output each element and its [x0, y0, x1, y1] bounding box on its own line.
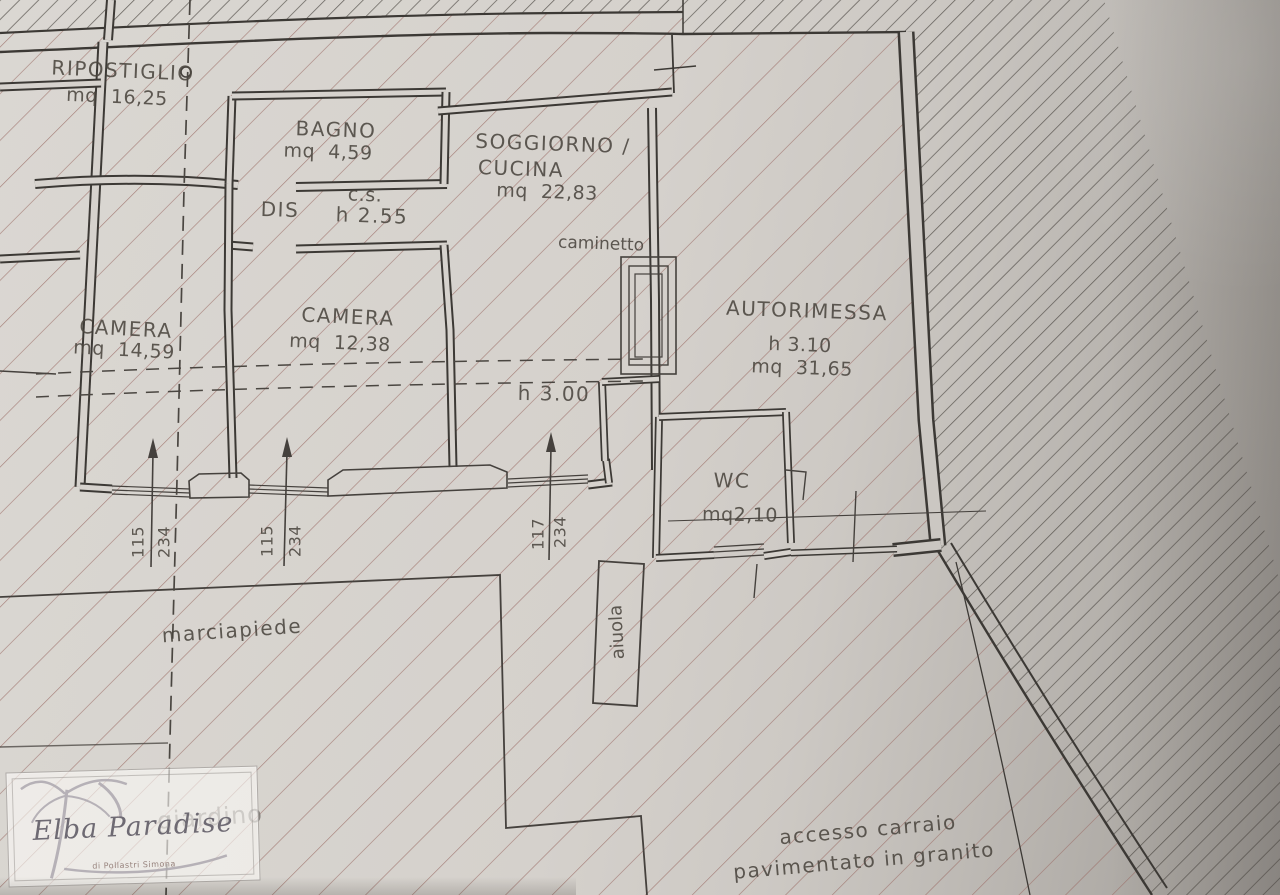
- room-label-dis: DIS: [260, 199, 299, 221]
- label-caminetto: caminetto: [558, 235, 645, 256]
- area-label-camera2: mq 12,38: [289, 332, 391, 356]
- window1-width: 115: [131, 526, 148, 558]
- window1-height: 234: [157, 526, 174, 558]
- height-label-main: h 3.00: [518, 383, 591, 405]
- area-label-soggiorno: mq 22,83: [496, 181, 598, 204]
- label-aiuola: aiuola: [607, 604, 629, 659]
- window2-height: 234: [288, 525, 305, 557]
- window3-height: 234: [553, 516, 570, 548]
- room-label-soggiorno-1: SOGGIORNO /: [475, 131, 631, 157]
- area-label-ripostiglio: mq 16,25: [66, 86, 168, 110]
- room-label-autorimessa: AUTORIMESSA: [726, 298, 889, 325]
- window3-width: 117: [531, 518, 548, 550]
- area-label-wc: mq2,10: [702, 505, 778, 526]
- floor-plan-drawing: [0, 0, 1280, 895]
- room-label-camera2: CAMERA: [301, 304, 395, 329]
- area-label-bagno: mq 4,59: [283, 141, 373, 164]
- floor-plan-photo: RIPOSTIGLIO mq 16,25 BAGNO mq 4,59 SOGGI…: [0, 0, 1280, 895]
- watermark-logo: Elba Paradise di Pollastri Simona: [5, 766, 260, 888]
- window2-width: 115: [260, 525, 277, 557]
- room-label-bagno: BAGNO: [295, 118, 376, 142]
- height-label-autorimessa: h 3.10: [768, 335, 832, 357]
- height-label-cs: h 2.55: [335, 204, 408, 228]
- area-label-autorimessa: mq 31,65: [751, 357, 853, 380]
- room-label-wc: WC: [713, 470, 750, 492]
- room-label-soggiorno-2: CUCINA: [478, 157, 565, 181]
